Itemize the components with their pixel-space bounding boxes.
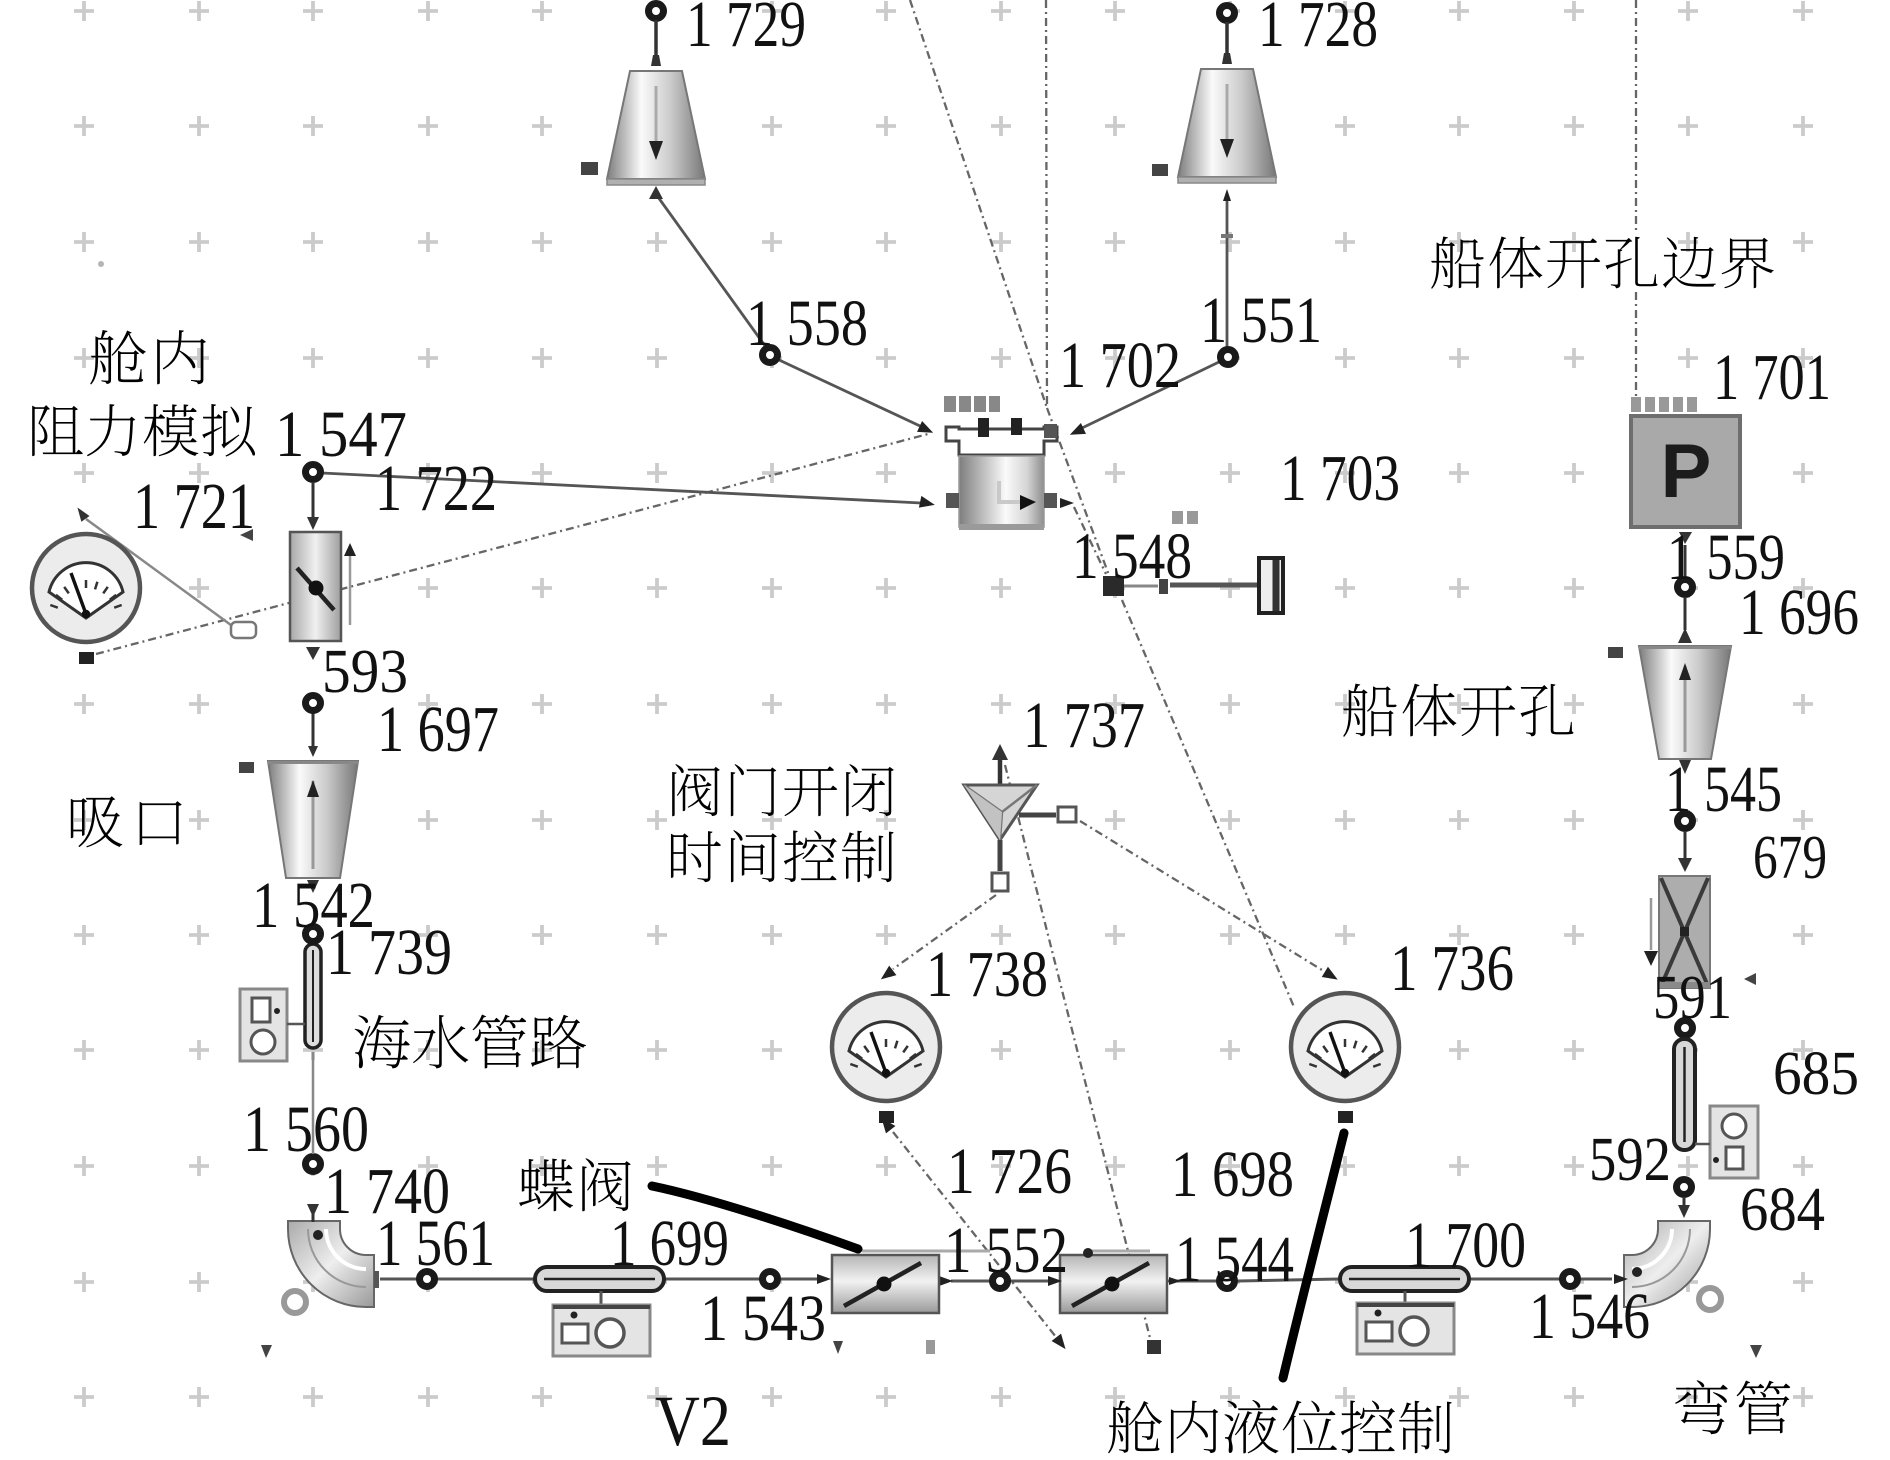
svg-text:1 561: 1 561 (376, 1207, 495, 1280)
svg-text:1 543: 1 543 (700, 1282, 826, 1355)
svg-text:1 545: 1 545 (1665, 753, 1782, 826)
svg-text:1 548: 1 548 (1072, 520, 1192, 593)
svg-text:1 697: 1 697 (377, 693, 499, 766)
svg-text:685: 685 (1773, 1040, 1859, 1108)
svg-text:1 551: 1 551 (1200, 284, 1322, 357)
svg-text:1 698: 1 698 (1171, 1138, 1294, 1211)
svg-text:1 728: 1 728 (1258, 0, 1378, 61)
svg-text:1 736: 1 736 (1390, 932, 1514, 1005)
svg-text:1 703: 1 703 (1280, 442, 1400, 515)
svg-text:1 701: 1 701 (1713, 341, 1831, 414)
svg-text:1 721: 1 721 (133, 470, 255, 543)
svg-text:1 737: 1 737 (1023, 689, 1145, 762)
svg-text:1 700: 1 700 (1405, 1209, 1526, 1282)
svg-text:P: P (1661, 429, 1712, 514)
svg-text:679: 679 (1753, 824, 1827, 892)
svg-text:1 558: 1 558 (746, 287, 868, 360)
svg-text:1 699: 1 699 (610, 1207, 729, 1280)
svg-text:1 544: 1 544 (1175, 1223, 1294, 1296)
svg-text:1 702: 1 702 (1059, 329, 1181, 402)
svg-text:1 729: 1 729 (686, 0, 806, 61)
svg-text:1 726: 1 726 (947, 1135, 1072, 1208)
svg-text:V2: V2 (655, 1381, 731, 1455)
svg-text:1 552: 1 552 (944, 1214, 1068, 1287)
svg-text:1 722: 1 722 (375, 452, 497, 525)
svg-text:591: 591 (1653, 964, 1732, 1032)
svg-text:684: 684 (1740, 1176, 1825, 1244)
svg-text:1 696: 1 696 (1739, 576, 1859, 649)
svg-text:1 738: 1 738 (926, 938, 1048, 1011)
svg-text:592: 592 (1589, 1126, 1671, 1194)
svg-text:1 739: 1 739 (326, 916, 452, 989)
svg-text:1 546: 1 546 (1529, 1280, 1650, 1353)
